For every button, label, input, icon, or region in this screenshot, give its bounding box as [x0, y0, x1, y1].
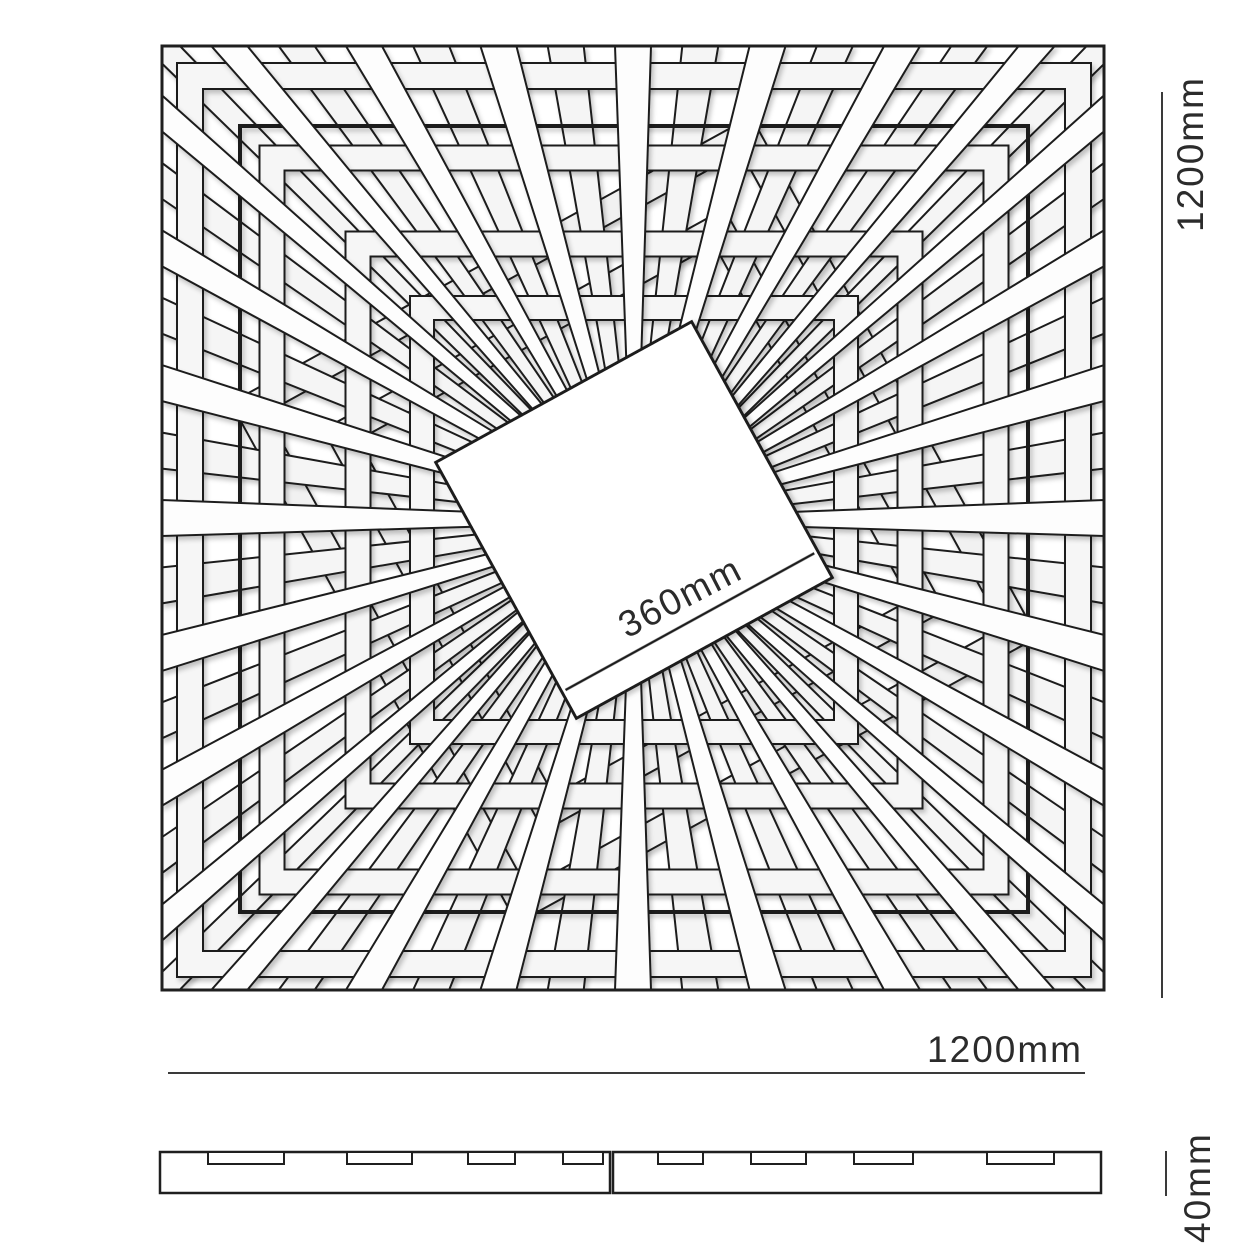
profile-groove	[208, 1152, 284, 1164]
panel-technical-drawing: 360mm 1200mm 1200mm 40mm	[0, 0, 1250, 1250]
profile-thickness-label: 40mm	[1177, 1132, 1218, 1243]
profile-groove	[854, 1152, 913, 1164]
profile-groove	[751, 1152, 806, 1164]
profile-groove	[563, 1152, 603, 1164]
drawing-canvas: 360mm 1200mm 1200mm 40mm	[0, 0, 1250, 1250]
profile-groove	[468, 1152, 515, 1164]
profile-groove	[347, 1152, 412, 1164]
dimension-bottom: 1200mm	[168, 1029, 1085, 1073]
dimension-right: 1200mm	[1162, 76, 1211, 998]
right-dimension-label: 1200mm	[1170, 76, 1211, 232]
side-profile-view: 40mm	[160, 1132, 1218, 1243]
bottom-dimension-label: 1200mm	[927, 1029, 1083, 1070]
profile-groove	[658, 1152, 703, 1164]
profile-groove	[987, 1152, 1054, 1164]
